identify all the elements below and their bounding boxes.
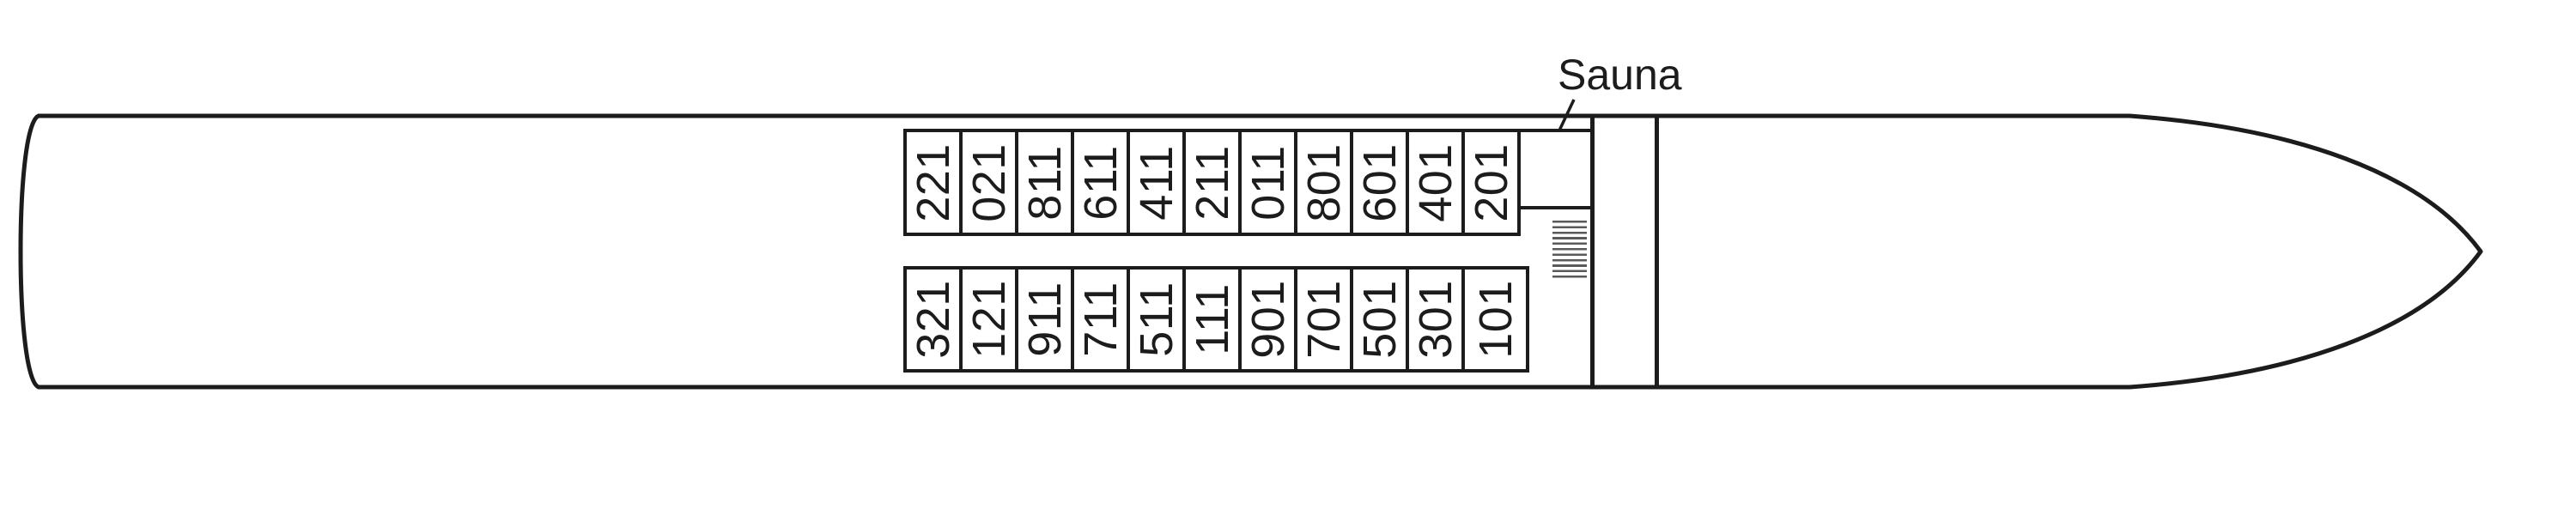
cabin-number: 711 [1078,282,1124,357]
cabin-105: 501 [1350,266,1409,373]
cabin-102: 201 [1461,129,1521,236]
cabin-number: 901 [1245,280,1291,359]
cabin-number: 021 [966,143,1012,222]
cabin-number: 301 [1413,280,1459,359]
bulkhead-wall-left [1590,118,1595,387]
cabin-number: 121 [966,280,1012,359]
cabin-number: 911 [1022,282,1068,357]
cabin-121: 121 [959,266,1018,373]
cabin-number: 321 [910,280,957,359]
cabin-122: 221 [903,129,963,236]
deck-plan: Sauna 221021811611411211011801601401201 … [0,0,2576,515]
sauna-room [1517,129,1595,209]
cabin-number: 211 [1189,145,1236,221]
cabin-119: 911 [1015,266,1074,373]
cabin-107: 701 [1294,266,1353,373]
sauna-label: Sauna [1558,53,1682,96]
cabin-number: 611 [1078,145,1124,221]
cabin-120: 021 [959,129,1018,236]
cabin-114: 411 [1127,129,1186,236]
ship-hull-graphic [0,0,2576,515]
cabin-106: 601 [1350,129,1409,236]
stairs-icon [1552,221,1587,281]
cabin-111: 111 [1182,266,1242,373]
cabin-number: 811 [1022,145,1068,221]
cabin-number: 401 [1413,143,1459,222]
cabin-109: 901 [1238,266,1297,373]
cabin-101: 101 [1461,266,1529,373]
cabin-number: 111 [1189,283,1236,355]
cabin-number: 601 [1357,143,1403,222]
cabin-116: 611 [1071,129,1130,236]
cabin-number: 701 [1301,280,1347,359]
cabin-number: 101 [1473,280,1519,359]
cabin-104: 401 [1406,129,1465,236]
cabin-117: 711 [1071,266,1130,373]
cabin-112: 211 [1182,129,1242,236]
cabin-108: 801 [1294,129,1353,236]
bulkhead-wall-right [1655,118,1659,387]
cabin-number: 201 [1468,143,1515,222]
cabin-number: 501 [1357,280,1403,359]
cabin-123: 321 [903,266,963,373]
cabin-103: 301 [1406,266,1465,373]
cabin-number: 411 [1133,145,1180,221]
cabin-number: 011 [1245,145,1291,221]
cabin-number: 801 [1301,143,1347,222]
cabin-number: 221 [910,143,957,222]
cabin-118: 811 [1015,129,1074,236]
cabin-number: 511 [1133,282,1180,357]
cabin-115: 511 [1127,266,1186,373]
cabin-110: 011 [1238,129,1297,236]
